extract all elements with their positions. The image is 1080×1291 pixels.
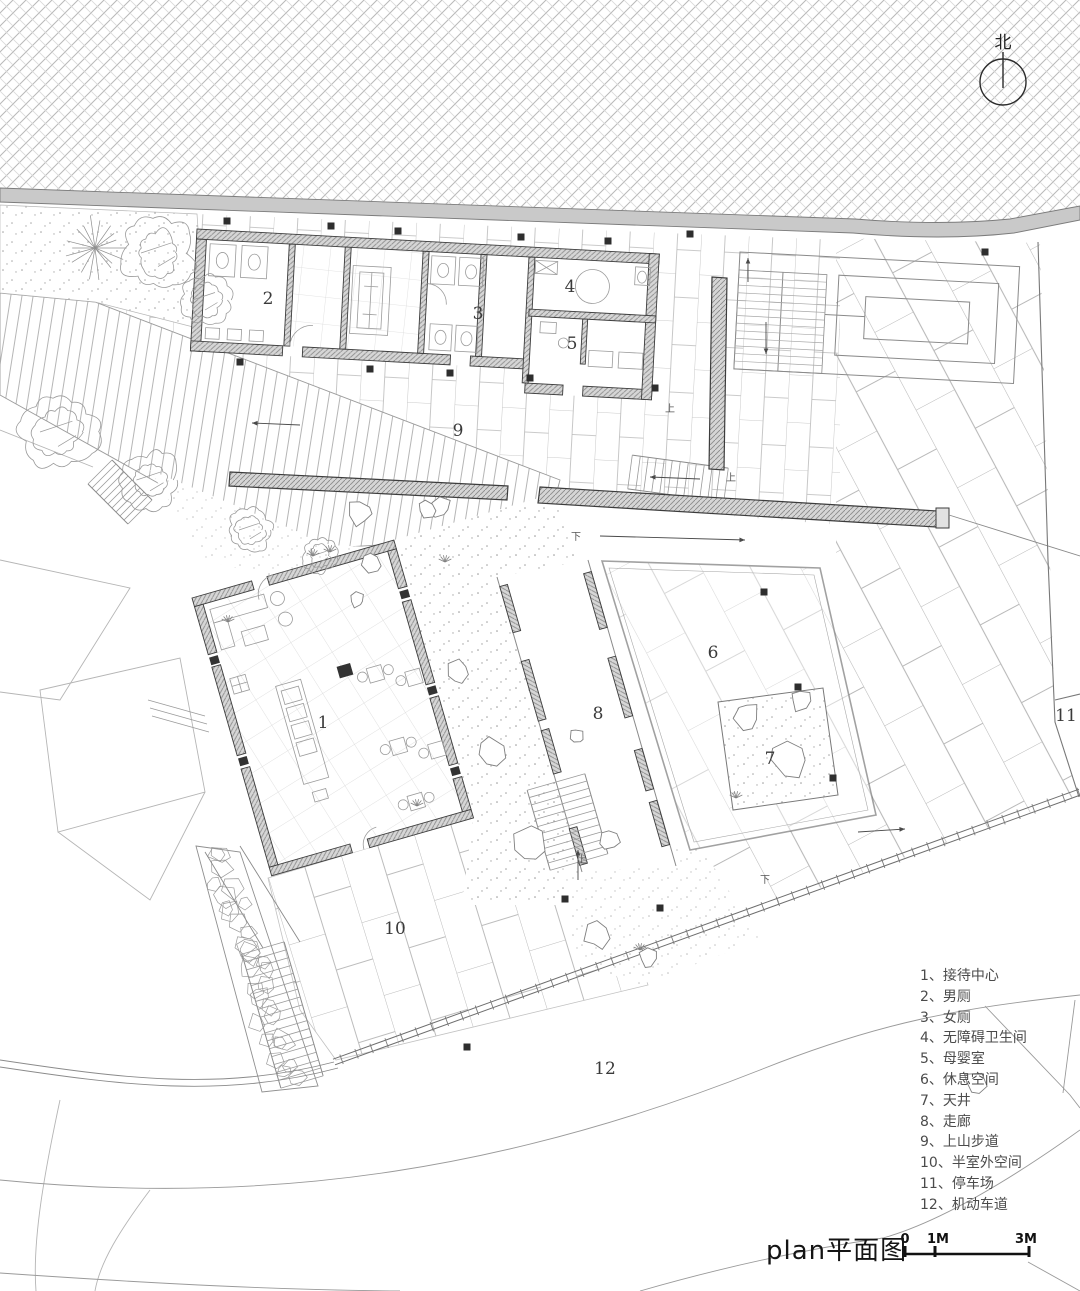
site-plan-sheet: 123456789101112上上下上下 北 0 1M 3M 1、接待中心2、男… — [0, 0, 1080, 1291]
column-marker — [982, 249, 989, 256]
column-marker — [518, 234, 525, 241]
column-marker — [527, 375, 534, 382]
scale-1m-label: 1M — [927, 1232, 949, 1247]
column-marker — [830, 775, 837, 782]
scale-3m-label: 3M — [1015, 1232, 1037, 1247]
legend-item-3: 3、女厕 — [920, 1008, 1027, 1029]
column-marker — [237, 359, 244, 366]
column-marker — [395, 228, 402, 235]
stair-direction-label-3: 上 — [577, 854, 587, 866]
column-marker — [687, 231, 694, 238]
legend-item-2: 2、男厕 — [920, 987, 1027, 1008]
legend-item-10: 10、半室外空间 — [920, 1153, 1027, 1174]
legend-item-11: 11、停车场 — [920, 1174, 1027, 1195]
stair-direction-label-1: 上 — [726, 472, 736, 484]
plan-label-9: 9 — [453, 421, 464, 441]
plan-label-7: 7 — [765, 749, 776, 769]
legend-item-9: 9、上山步道 — [920, 1132, 1027, 1153]
column-marker — [328, 223, 335, 230]
plan-label-2: 2 — [263, 289, 274, 309]
plan-label-12: 12 — [594, 1059, 616, 1079]
stair-direction-label-4: 下 — [760, 875, 770, 886]
plan-label-4: 4 — [565, 277, 576, 297]
legend-item-1: 1、接待中心 — [920, 966, 1027, 987]
column-marker — [464, 1044, 471, 1051]
plan-label-11: 11 — [1055, 706, 1077, 726]
legend-item-4: 4、无障碍卫生间 — [920, 1028, 1027, 1049]
legend-item-8: 8、走廊 — [920, 1112, 1027, 1133]
column-marker — [657, 905, 664, 912]
plan-label-10: 10 — [384, 919, 406, 939]
legend: 1、接待中心2、男厕3、女厕4、无障碍卫生间5、母婴室6、休息空间7、天井8、走… — [920, 966, 1027, 1216]
plan-label-1: 1 — [318, 713, 329, 733]
column-marker — [795, 684, 802, 691]
site-plan-canvas: 123456789101112上上下上下 北 0 1M 3M — [0, 0, 1080, 1291]
plan-label-5: 5 — [567, 334, 578, 354]
column-marker — [652, 385, 659, 392]
legend-item-5: 5、母婴室 — [920, 1049, 1027, 1070]
legend-item-6: 6、休息空间 — [920, 1070, 1027, 1091]
column-marker — [562, 896, 569, 903]
column-marker — [447, 370, 454, 377]
stair-direction-label-2: 下 — [571, 532, 581, 543]
legend-item-12: 12、机动车道 — [920, 1195, 1027, 1216]
column-marker — [367, 366, 374, 373]
crosshatch-hillside — [0, 0, 1080, 223]
plan-label-8: 8 — [593, 704, 604, 724]
plan-label-3: 3 — [473, 304, 484, 324]
north-label: 北 — [995, 33, 1012, 53]
legend-item-7: 7、天井 — [920, 1091, 1027, 1112]
rock-icon — [570, 730, 583, 742]
column-marker — [761, 589, 768, 596]
column-marker — [605, 238, 612, 245]
plan-label-6: 6 — [708, 643, 719, 663]
column-marker — [224, 218, 231, 225]
stair-direction-label-0: 上 — [665, 403, 675, 415]
plan-title: plan平面图 — [766, 1230, 907, 1267]
